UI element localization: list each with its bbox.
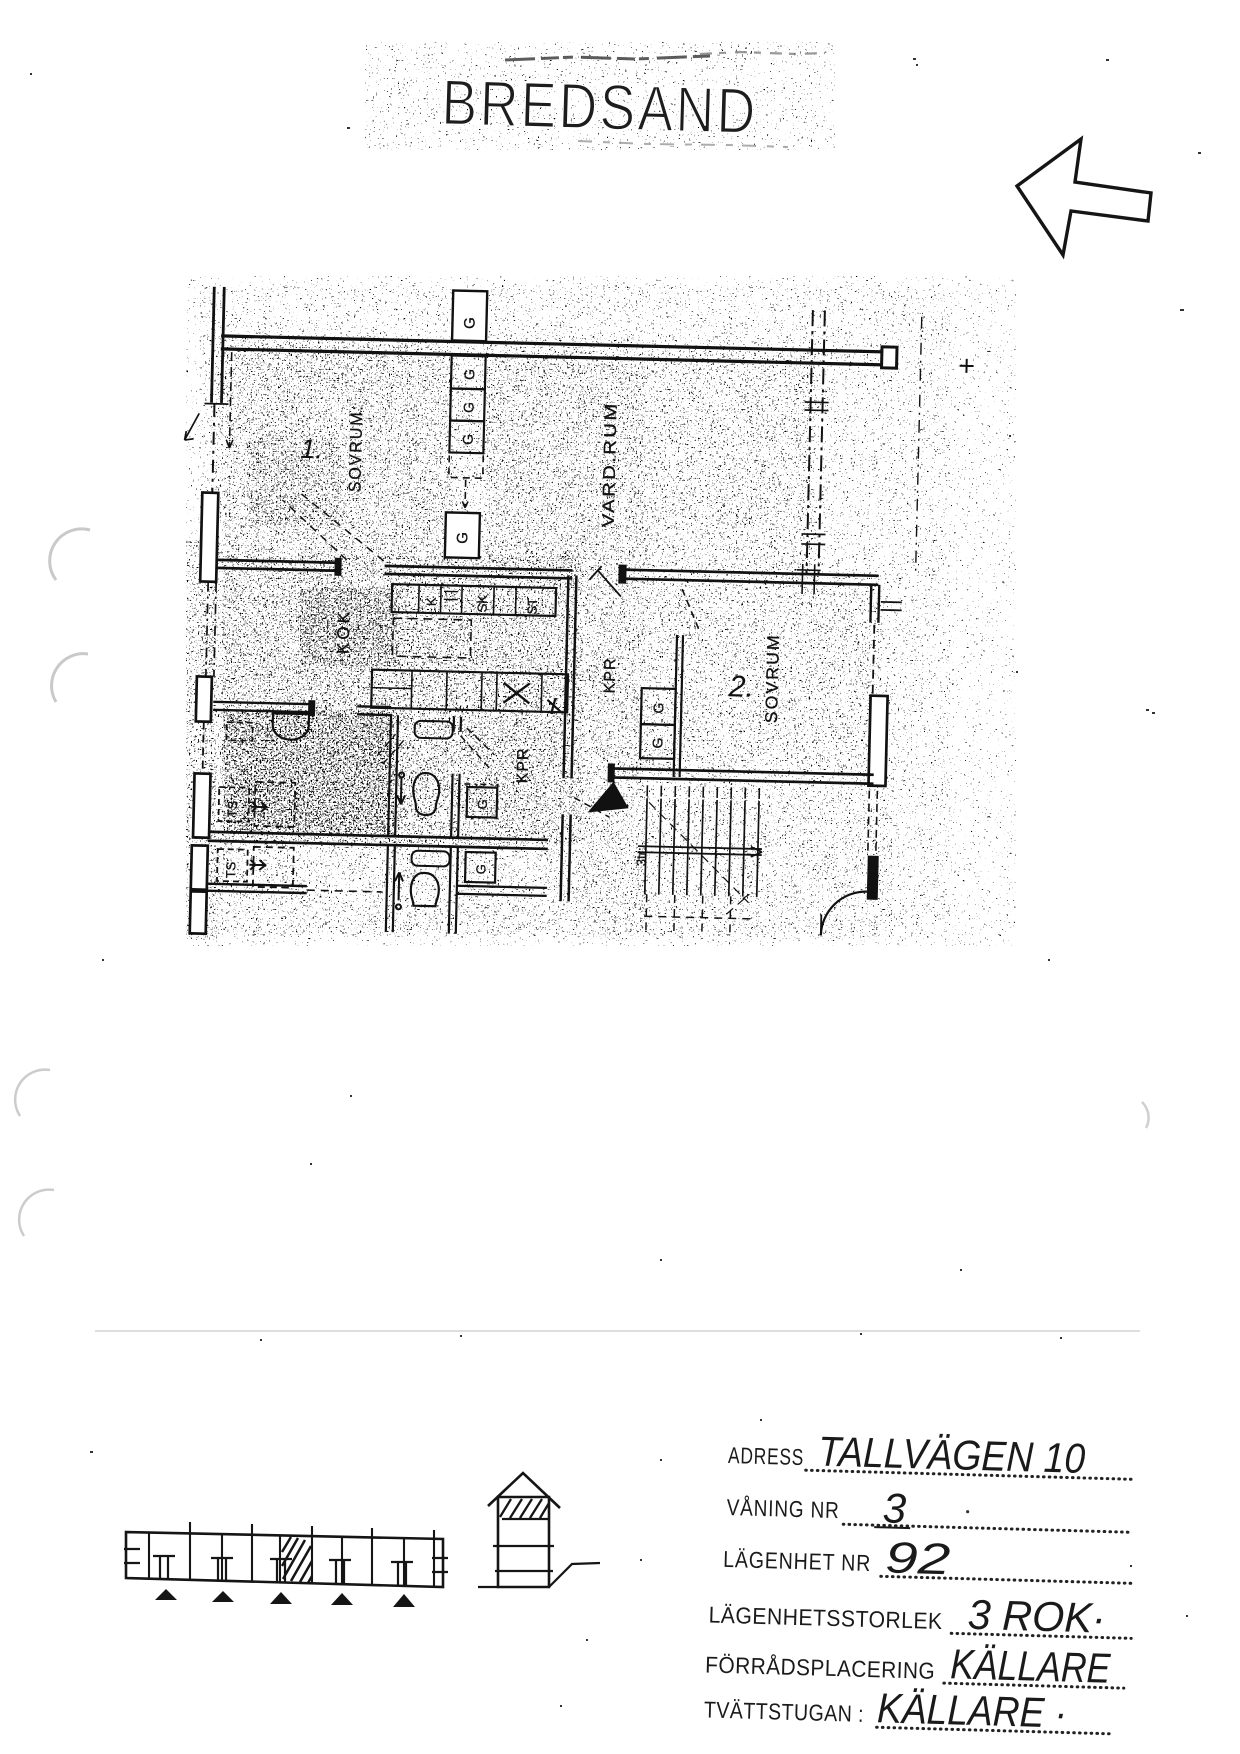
svg-text:2.: 2. bbox=[727, 670, 754, 704]
svg-text:1.: 1. bbox=[300, 434, 323, 465]
svg-text:G: G bbox=[649, 737, 665, 748]
svg-text:KÄLLARE ·: KÄLLARE · bbox=[876, 1684, 1067, 1736]
svg-text:KÖK: KÖK bbox=[333, 609, 353, 654]
svg-text:G: G bbox=[461, 317, 478, 329]
svg-text:K: K bbox=[424, 597, 439, 606]
svg-text:SOVRUM: SOVRUM bbox=[762, 633, 783, 723]
svg-text:TS: TS bbox=[225, 800, 240, 817]
svg-text:G: G bbox=[454, 532, 471, 544]
svg-text:TVÄTTSTUGAN :: TVÄTTSTUGAN : bbox=[704, 1696, 865, 1726]
svg-text:3tr:: 3tr: bbox=[633, 847, 648, 866]
svg-text:G: G bbox=[475, 799, 490, 809]
svg-text:KPR: KPR bbox=[514, 747, 532, 783]
svg-text:KPR: KPR bbox=[602, 657, 620, 693]
svg-text:G: G bbox=[461, 369, 477, 380]
svg-text:LÄGENHET NR: LÄGENHET NR bbox=[723, 1546, 872, 1576]
svg-text:G: G bbox=[460, 402, 476, 413]
svg-text:KÄLLARE: KÄLLARE bbox=[950, 1640, 1112, 1691]
svg-text:G: G bbox=[460, 434, 476, 445]
svg-text:VÅNING NR: VÅNING NR bbox=[726, 1494, 840, 1523]
svg-text:ST: ST bbox=[524, 598, 539, 615]
svg-text:ADRESS: ADRESS bbox=[728, 1442, 805, 1470]
svg-text:G: G bbox=[650, 702, 666, 713]
svg-text:SOVRUM:: SOVRUM: bbox=[345, 404, 366, 492]
svg-text:92: 92 bbox=[885, 1533, 951, 1584]
svg-text:SK: SK bbox=[475, 594, 490, 612]
svg-text:TALLVÄGEN 10: TALLVÄGEN 10 bbox=[818, 1428, 1087, 1482]
svg-text:VARD.RUM: VARD.RUM bbox=[599, 401, 621, 527]
svg-text:3: 3 bbox=[882, 1484, 907, 1532]
svg-text:TS: TS bbox=[223, 861, 238, 878]
svg-text:BREDSAND: BREDSAND bbox=[441, 66, 759, 147]
svg-text:G: G bbox=[473, 864, 488, 874]
svg-text:3 ROK·: 3 ROK· bbox=[967, 1591, 1106, 1642]
